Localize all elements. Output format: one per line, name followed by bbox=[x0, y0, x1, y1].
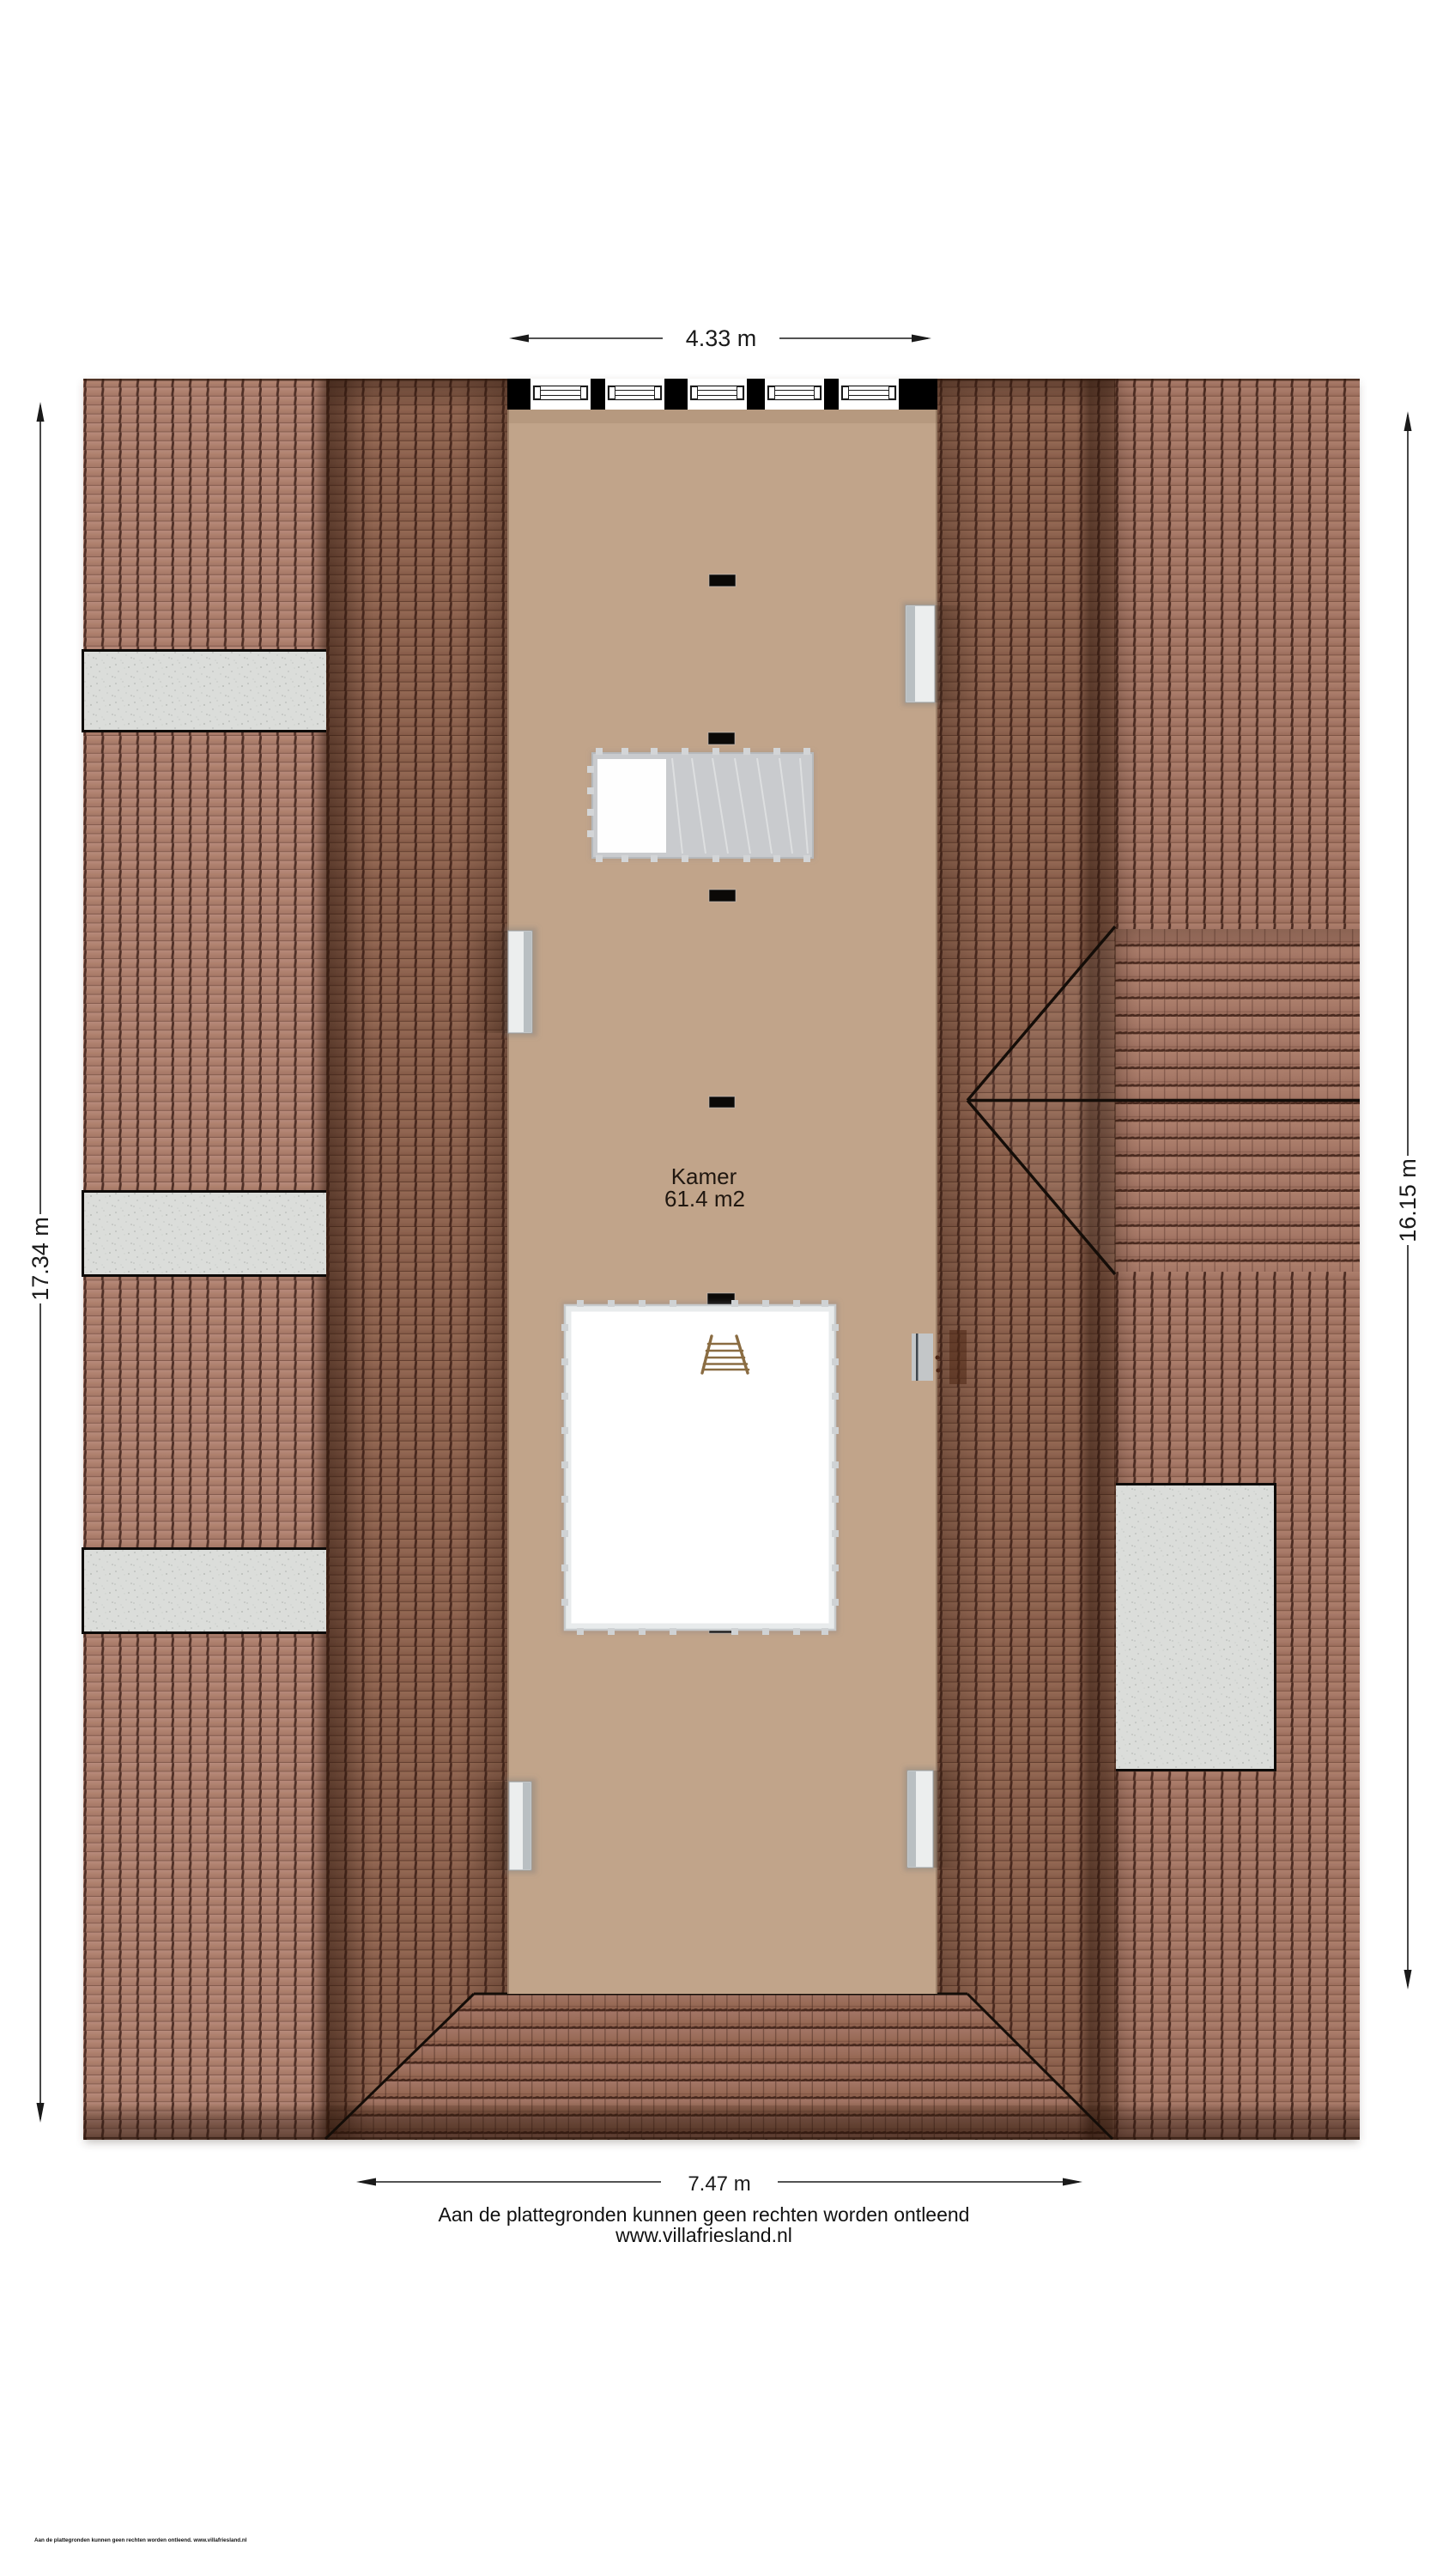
svg-text:7.47 m: 7.47 m bbox=[688, 2172, 750, 2196]
svg-text:17.34 m: 17.34 m bbox=[27, 1217, 53, 1301]
svg-text:61.4 m2: 61.4 m2 bbox=[664, 1186, 745, 1212]
svg-text:www.villafriesland.nl: www.villafriesland.nl bbox=[615, 2224, 792, 2246]
svg-text:Aan de plattegronden kunnen ge: Aan de plattegronden kunnen geen rechten… bbox=[439, 2203, 970, 2226]
svg-text:4.33 m: 4.33 m bbox=[686, 325, 757, 351]
svg-text:Aan de plattegronden kunnen ge: Aan de plattegronden kunnen geen rechten… bbox=[34, 2537, 247, 2543]
svg-text:16.15 m: 16.15 m bbox=[1395, 1158, 1421, 1242]
